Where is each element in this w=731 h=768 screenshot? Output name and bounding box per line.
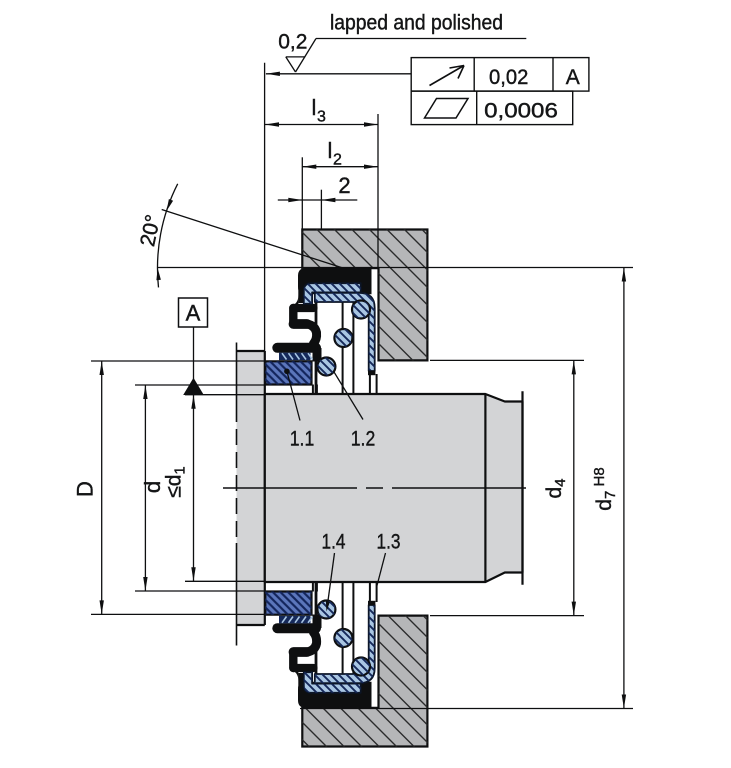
- svg-text:1.4: 1.4: [322, 531, 346, 554]
- svg-text:A: A: [186, 301, 201, 326]
- svg-text:1.2: 1.2: [351, 428, 376, 451]
- svg-text:D: D: [73, 481, 98, 497]
- svg-text:A: A: [566, 66, 580, 89]
- svg-text:2: 2: [338, 173, 350, 198]
- svg-text:0,2: 0,2: [278, 31, 307, 54]
- svg-text:lapped and polished: lapped and polished: [330, 12, 503, 35]
- svg-text:1.1: 1.1: [290, 428, 315, 451]
- svg-text:1.3: 1.3: [377, 531, 401, 554]
- svg-text:l: l: [328, 138, 333, 163]
- svg-text:d: d: [140, 481, 165, 493]
- svg-text:2: 2: [333, 152, 342, 169]
- svg-text:0,02: 0,02: [489, 66, 528, 89]
- svg-text:l: l: [312, 95, 317, 120]
- svg-text:0,0006: 0,0006: [484, 100, 558, 123]
- svg-text:3: 3: [317, 109, 326, 126]
